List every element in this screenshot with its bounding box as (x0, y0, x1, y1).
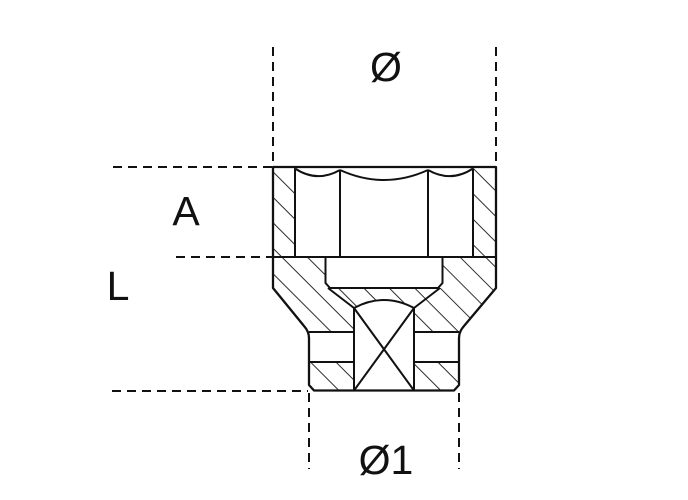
right-groove-fill (414, 332, 459, 362)
left-groove-fill (309, 332, 354, 362)
drawing-canvas: Ø A L Ø1 (0, 0, 688, 500)
label-outer-diameter: Ø (370, 44, 402, 90)
label-opening-depth: A (172, 188, 200, 234)
label-drive-end-diameter: Ø1 (359, 437, 414, 483)
intermediate-recess-fill (326, 257, 443, 288)
label-total-length: L (107, 263, 130, 309)
socket-cross-section-drawing: Ø A L Ø1 (0, 0, 688, 500)
